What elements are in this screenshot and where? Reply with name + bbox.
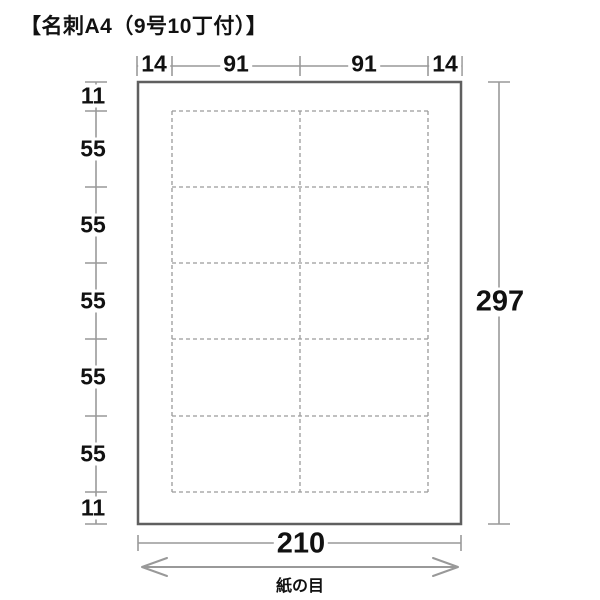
left-dim-label-row-2: 55 [77,214,109,237]
left-dim-label-row-5: 55 [77,443,109,466]
diagram-title: 【名刺A4（9号10丁付）】 [20,10,267,40]
left-dim-label-row-4: 55 [77,366,109,389]
top-dim-label-card-width-1: 91 [220,53,252,76]
top-dimension-line [137,56,462,76]
top-dim-label-card-width-2: 91 [348,53,380,76]
left-dim-label-margin-bottom: 11 [78,497,108,520]
grain-direction-label: 紙の目 [276,579,324,595]
grain-direction-arrow [142,558,458,576]
diagram-canvas: 【名刺A4（9号10丁付）】 14 91 91 14 11 55 55 55 5… [0,0,600,600]
top-dim-label-margin-right: 14 [429,53,461,76]
left-dim-label-margin-top: 11 [78,85,108,108]
top-dim-label-margin-left: 14 [138,53,170,76]
left-dim-label-row-1: 55 [77,138,109,161]
right-dim-label-total-height: 297 [473,288,527,317]
left-dim-label-row-3: 55 [77,290,109,313]
bottom-dim-label-total-width: 210 [274,530,328,559]
